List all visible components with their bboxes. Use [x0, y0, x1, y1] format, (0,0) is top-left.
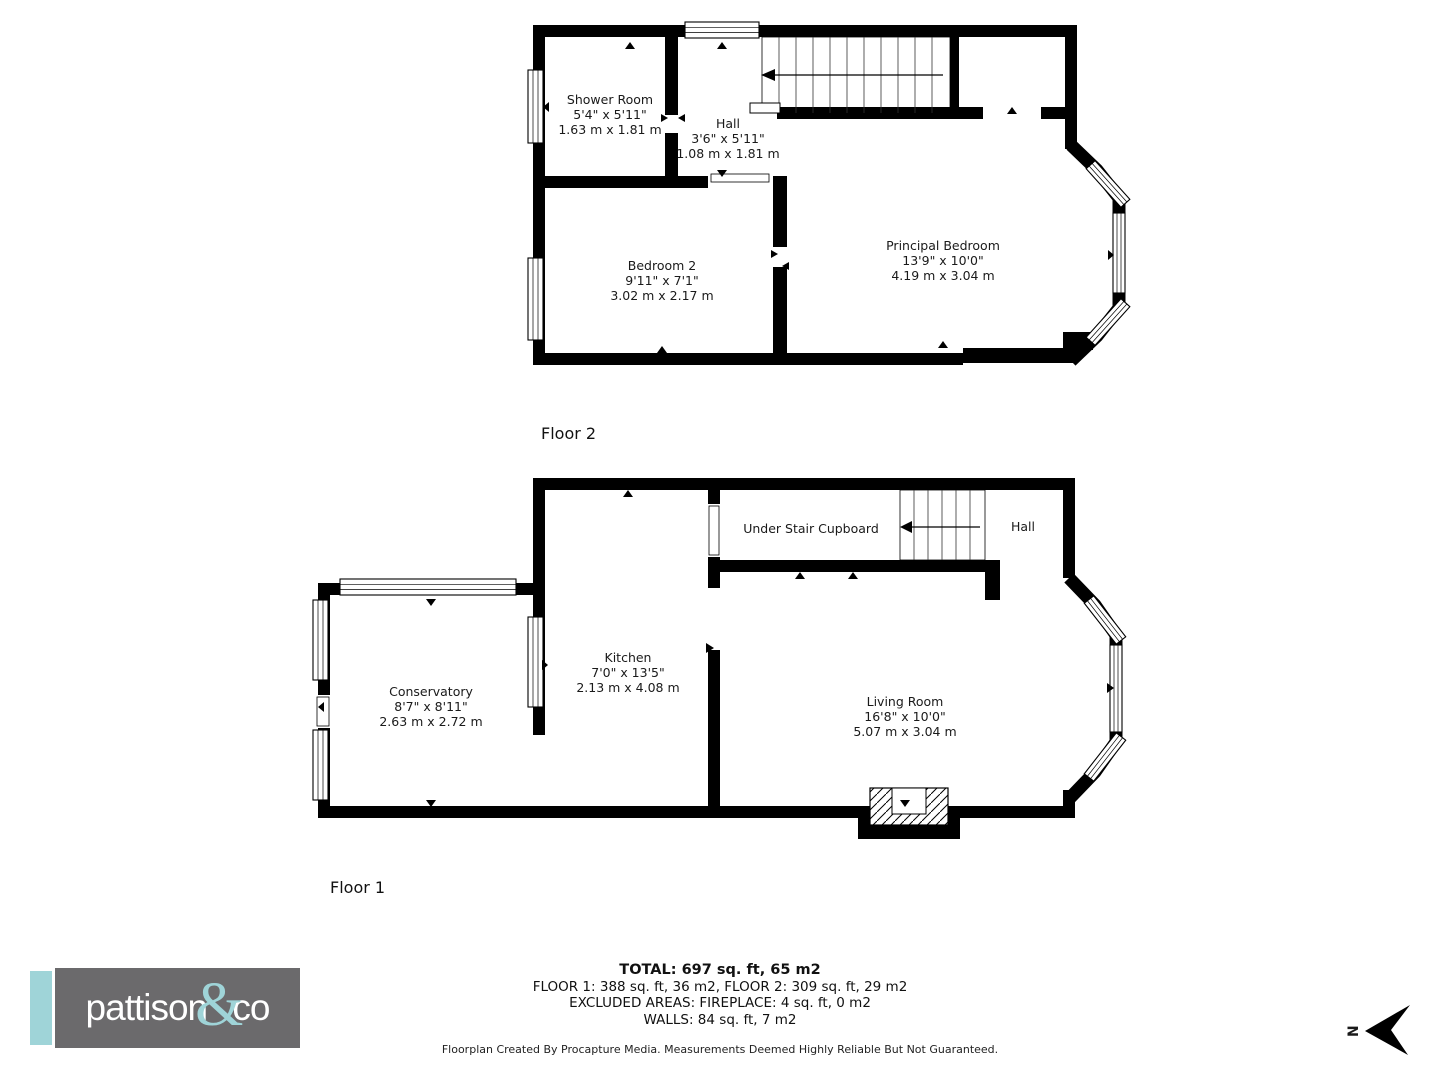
shower-room-metric: 1.63 m x 1.81 m: [558, 122, 661, 137]
floor2-label: Floor 2: [541, 424, 596, 443]
floor1-stairs-direction-arrow: [900, 521, 912, 533]
floor1-stairs: [900, 490, 985, 560]
agency-logo: pattison & co: [30, 968, 300, 1048]
shower-room-name: Shower Room: [567, 92, 653, 107]
logo-wordmark: pattison & co: [86, 987, 270, 1029]
bedroom2-metric: 3.02 m x 2.17 m: [610, 288, 713, 303]
hall1-name: Hall: [1011, 519, 1035, 534]
bedroom2-name: Bedroom 2: [628, 258, 696, 273]
logo-box: pattison & co: [55, 968, 300, 1048]
floor2-stairs-landing: [750, 103, 780, 113]
logo-accent-bar: [30, 971, 52, 1045]
principal-bedroom-imperial: 13'9" x 10'0": [902, 253, 983, 268]
shower-room-imperial: 5'4" x 5'11": [573, 107, 646, 122]
hall2-imperial: 3'6" x 5'11": [691, 131, 764, 146]
living-room-metric: 5.07 m x 3.04 m: [853, 724, 956, 739]
floor2-opening-markers: [543, 42, 1114, 353]
hall2-metric: 1.08 m x 1.81 m: [676, 146, 779, 161]
under-stair-cupboard-name: Under Stair Cupboard: [743, 521, 879, 536]
living-room-imperial: 16'8" x 10'0": [864, 709, 945, 724]
bedroom2-imperial: 9'11" x 7'1": [625, 273, 698, 288]
floor2-hall-door: [711, 174, 769, 182]
principal-bedroom-name: Principal Bedroom: [886, 238, 1000, 253]
north-arrow-icon: [1365, 1005, 1410, 1055]
hall2-name: Hall: [716, 116, 740, 131]
floor2-stairs-direction-arrow: [761, 69, 775, 81]
floor1-plan: Conservatory 8'7" x 8'11" 2.63 m x 2.72 …: [310, 470, 1130, 862]
conservatory-imperial: 8'7" x 8'11": [394, 699, 467, 714]
floorplan-page: { "floor2": { "label": "Floor 2", "rooms…: [0, 0, 1440, 1080]
floor2-plan: Shower Room 5'4" x 5'11" 1.63 m x 1.81 m…: [525, 18, 1135, 384]
floor1-label: Floor 1: [330, 878, 385, 897]
floor1-room-labels: Conservatory 8'7" x 8'11" 2.63 m x 2.72 …: [379, 519, 1035, 739]
kitchen-hall-door: [709, 506, 719, 555]
north-label: N: [1346, 1025, 1362, 1037]
floor2-stairs: [762, 37, 950, 113]
fireplace: [870, 788, 948, 825]
compass: N: [1340, 1000, 1420, 1064]
conservatory-metric: 2.63 m x 2.72 m: [379, 714, 482, 729]
living-room-name: Living Room: [867, 694, 944, 709]
principal-bedroom-metric: 4.19 m x 3.04 m: [891, 268, 994, 283]
kitchen-name: Kitchen: [605, 650, 652, 665]
logo-text-left: pattison: [86, 987, 208, 1029]
kitchen-metric: 2.13 m x 4.08 m: [576, 680, 679, 695]
conservatory-door: [317, 697, 329, 726]
kitchen-imperial: 7'0" x 13'5": [591, 665, 664, 680]
floor1-walls: [318, 478, 1075, 839]
conservatory-name: Conservatory: [389, 684, 473, 699]
